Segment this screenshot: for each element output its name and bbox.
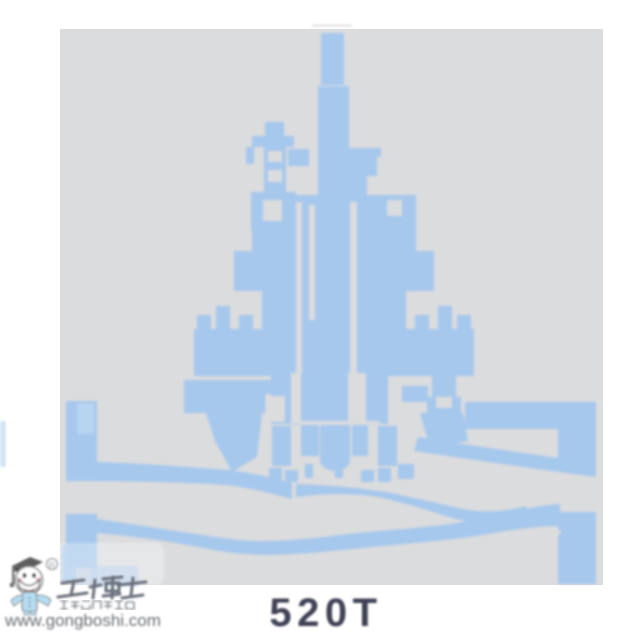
svg-text:R: R bbox=[49, 560, 55, 570]
svg-text:www.gongboshi.com: www.gongboshi.com bbox=[4, 611, 161, 630]
svg-text:520T: 520T bbox=[269, 591, 382, 635]
